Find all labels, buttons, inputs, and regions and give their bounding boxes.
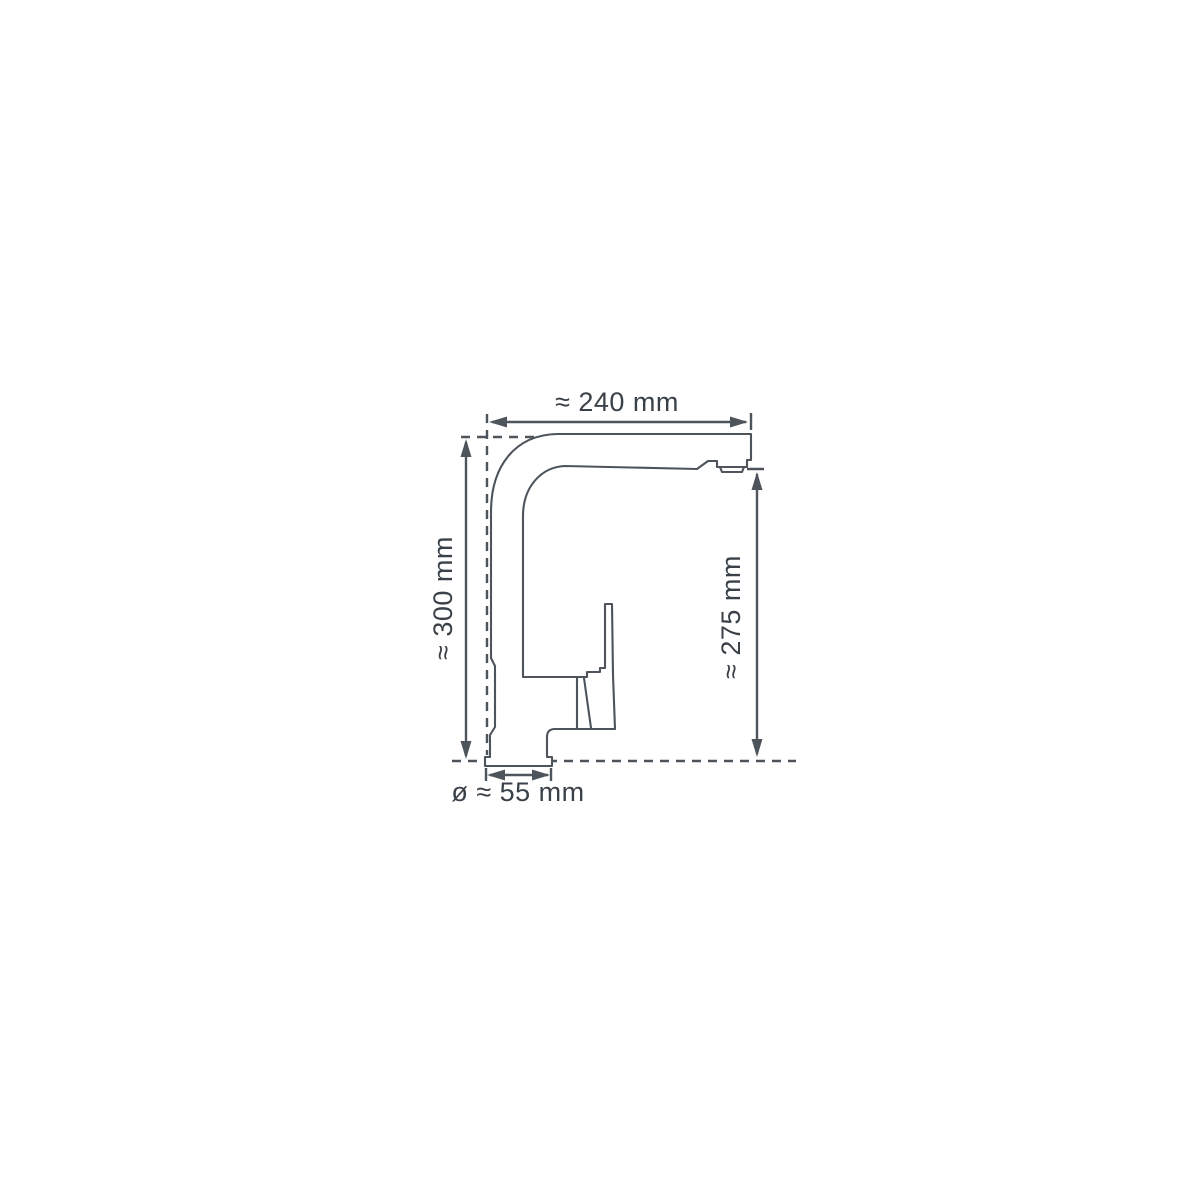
height-left-arrow-top xyxy=(461,439,472,457)
height-right-arrow-bottom xyxy=(752,739,763,757)
total-height-label: ≈ 300 mm xyxy=(428,536,458,660)
spout-reach-label: ≈ 240 mm xyxy=(555,387,679,417)
faucet-dimension-diagram: ≈ 240 mm ≈ 300 mm ≈ 275 mm ø ≈ 55 mm xyxy=(0,0,1200,1200)
width-arrow-left xyxy=(489,417,507,428)
faucet-outline xyxy=(485,434,751,766)
width-arrow-right xyxy=(730,417,748,428)
outlet-height-label: ≈ 275 mm xyxy=(716,555,746,679)
base-diameter-label: ø ≈ 55 mm xyxy=(451,777,584,807)
height-left-arrow-bottom xyxy=(461,741,472,759)
height-right-arrow-top xyxy=(752,472,763,490)
diagram-svg: ≈ 240 mm ≈ 300 mm ≈ 275 mm ø ≈ 55 mm xyxy=(0,0,1200,1200)
faucet-drawing xyxy=(485,434,751,766)
